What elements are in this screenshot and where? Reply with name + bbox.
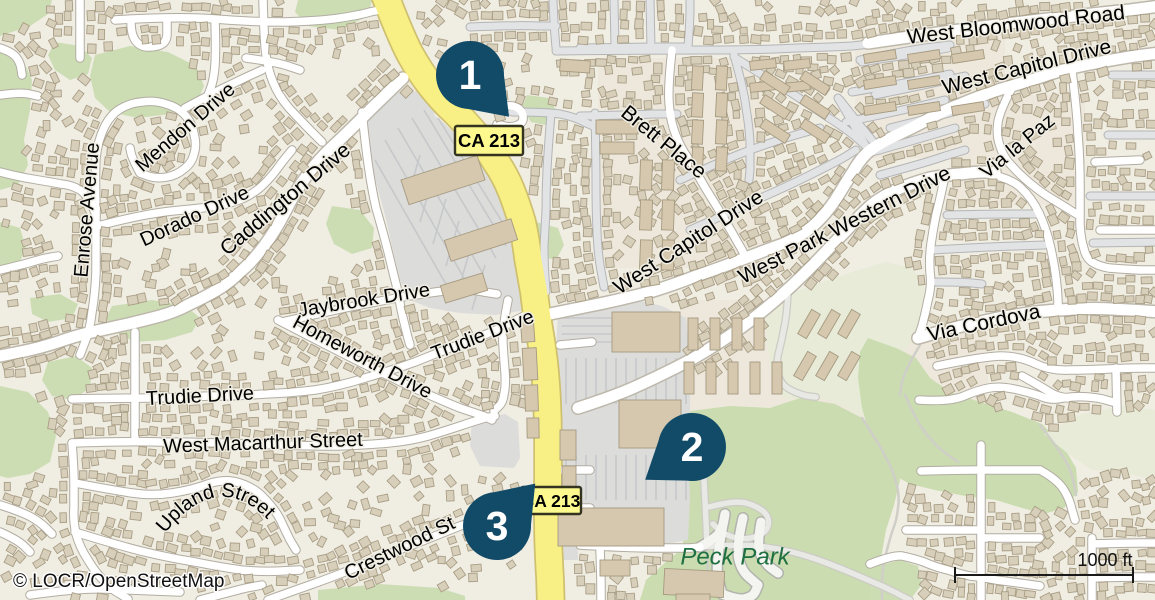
svg-text:© LOCR/OpenStreetMap: © LOCR/OpenStreetMap — [13, 571, 224, 592]
svg-text:Peck Park: Peck Park — [680, 543, 791, 570]
svg-text:3: 3 — [486, 503, 509, 549]
svg-text:2: 2 — [681, 424, 704, 470]
svg-text:1000 ft: 1000 ft — [1077, 550, 1132, 570]
svg-text:1: 1 — [459, 52, 482, 98]
svg-text:CA 213: CA 213 — [458, 130, 520, 151]
